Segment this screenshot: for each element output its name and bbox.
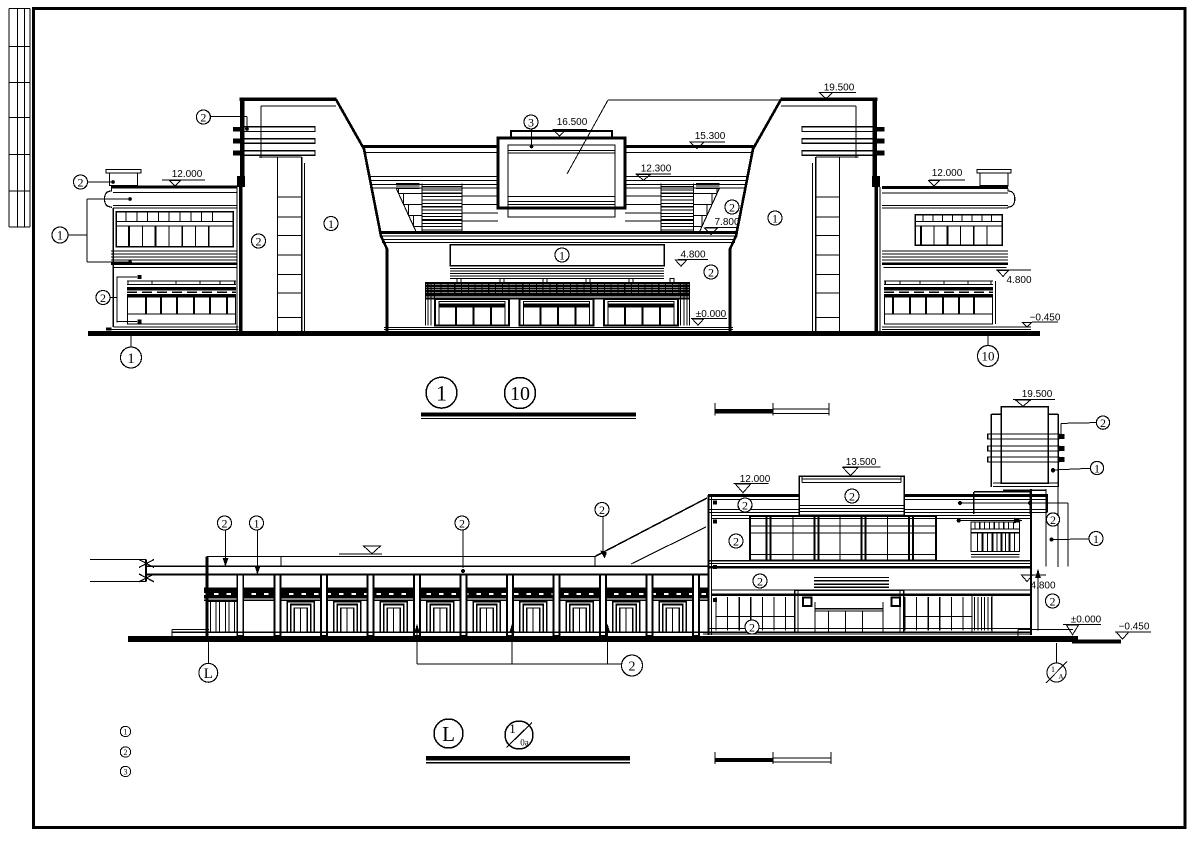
svg-text:2: 2 <box>1050 594 1056 608</box>
svg-text:1: 1 <box>1093 532 1099 546</box>
svg-text:1: 1 <box>328 217 334 231</box>
svg-text:2: 2 <box>1050 513 1056 527</box>
svg-text:A: A <box>1058 673 1063 681</box>
svg-text:3: 3 <box>124 767 128 776</box>
svg-text:12.000: 12.000 <box>932 168 963 179</box>
svg-text:1: 1 <box>124 727 128 736</box>
svg-text:−0.450: −0.450 <box>1119 622 1150 633</box>
svg-text:16.500: 16.500 <box>557 117 588 128</box>
svg-text:1: 1 <box>772 211 778 225</box>
svg-text:3: 3 <box>528 115 534 129</box>
svg-text:2: 2 <box>1100 416 1106 430</box>
svg-text:±0.000: ±0.000 <box>1071 615 1102 626</box>
svg-text:2: 2 <box>849 489 855 503</box>
svg-text:1: 1 <box>57 229 63 243</box>
svg-text:2: 2 <box>742 498 748 512</box>
svg-text:4.800: 4.800 <box>1006 275 1031 286</box>
svg-text:15.300: 15.300 <box>695 131 726 142</box>
svg-text:2: 2 <box>256 234 262 248</box>
svg-text:2: 2 <box>100 291 106 305</box>
svg-text:2: 2 <box>708 265 714 279</box>
svg-text:2: 2 <box>757 574 763 588</box>
svg-text:0а: 0а <box>520 738 529 748</box>
svg-text:1: 1 <box>509 721 516 736</box>
svg-text:12.000: 12.000 <box>172 169 203 180</box>
svg-text:10: 10 <box>510 383 530 405</box>
svg-text:1: 1 <box>1094 461 1100 475</box>
svg-text:1: 1 <box>1051 665 1055 674</box>
svg-text:L: L <box>442 722 455 746</box>
svg-text:2: 2 <box>124 748 128 757</box>
svg-text:1: 1 <box>254 516 260 530</box>
svg-text:1: 1 <box>559 248 565 262</box>
svg-text:1: 1 <box>436 381 447 406</box>
svg-text:10: 10 <box>982 349 995 364</box>
svg-text:4.800: 4.800 <box>1030 581 1055 592</box>
svg-text:2: 2 <box>729 200 735 214</box>
svg-text:2: 2 <box>200 110 206 124</box>
svg-text:2: 2 <box>599 503 605 517</box>
svg-text:2: 2 <box>78 175 84 189</box>
svg-text:2: 2 <box>222 516 228 530</box>
svg-text:12.300: 12.300 <box>641 164 672 175</box>
svg-text:13.500: 13.500 <box>846 457 877 468</box>
svg-text:4.800: 4.800 <box>680 250 705 261</box>
svg-text:2: 2 <box>629 660 636 675</box>
svg-text:2: 2 <box>733 534 739 548</box>
svg-text:L: L <box>204 666 213 682</box>
svg-text:7.800: 7.800 <box>714 217 739 228</box>
svg-text:2: 2 <box>459 516 465 530</box>
svg-text:2: 2 <box>749 620 755 634</box>
svg-text:1: 1 <box>127 351 135 367</box>
svg-text:19.500: 19.500 <box>1022 389 1053 400</box>
